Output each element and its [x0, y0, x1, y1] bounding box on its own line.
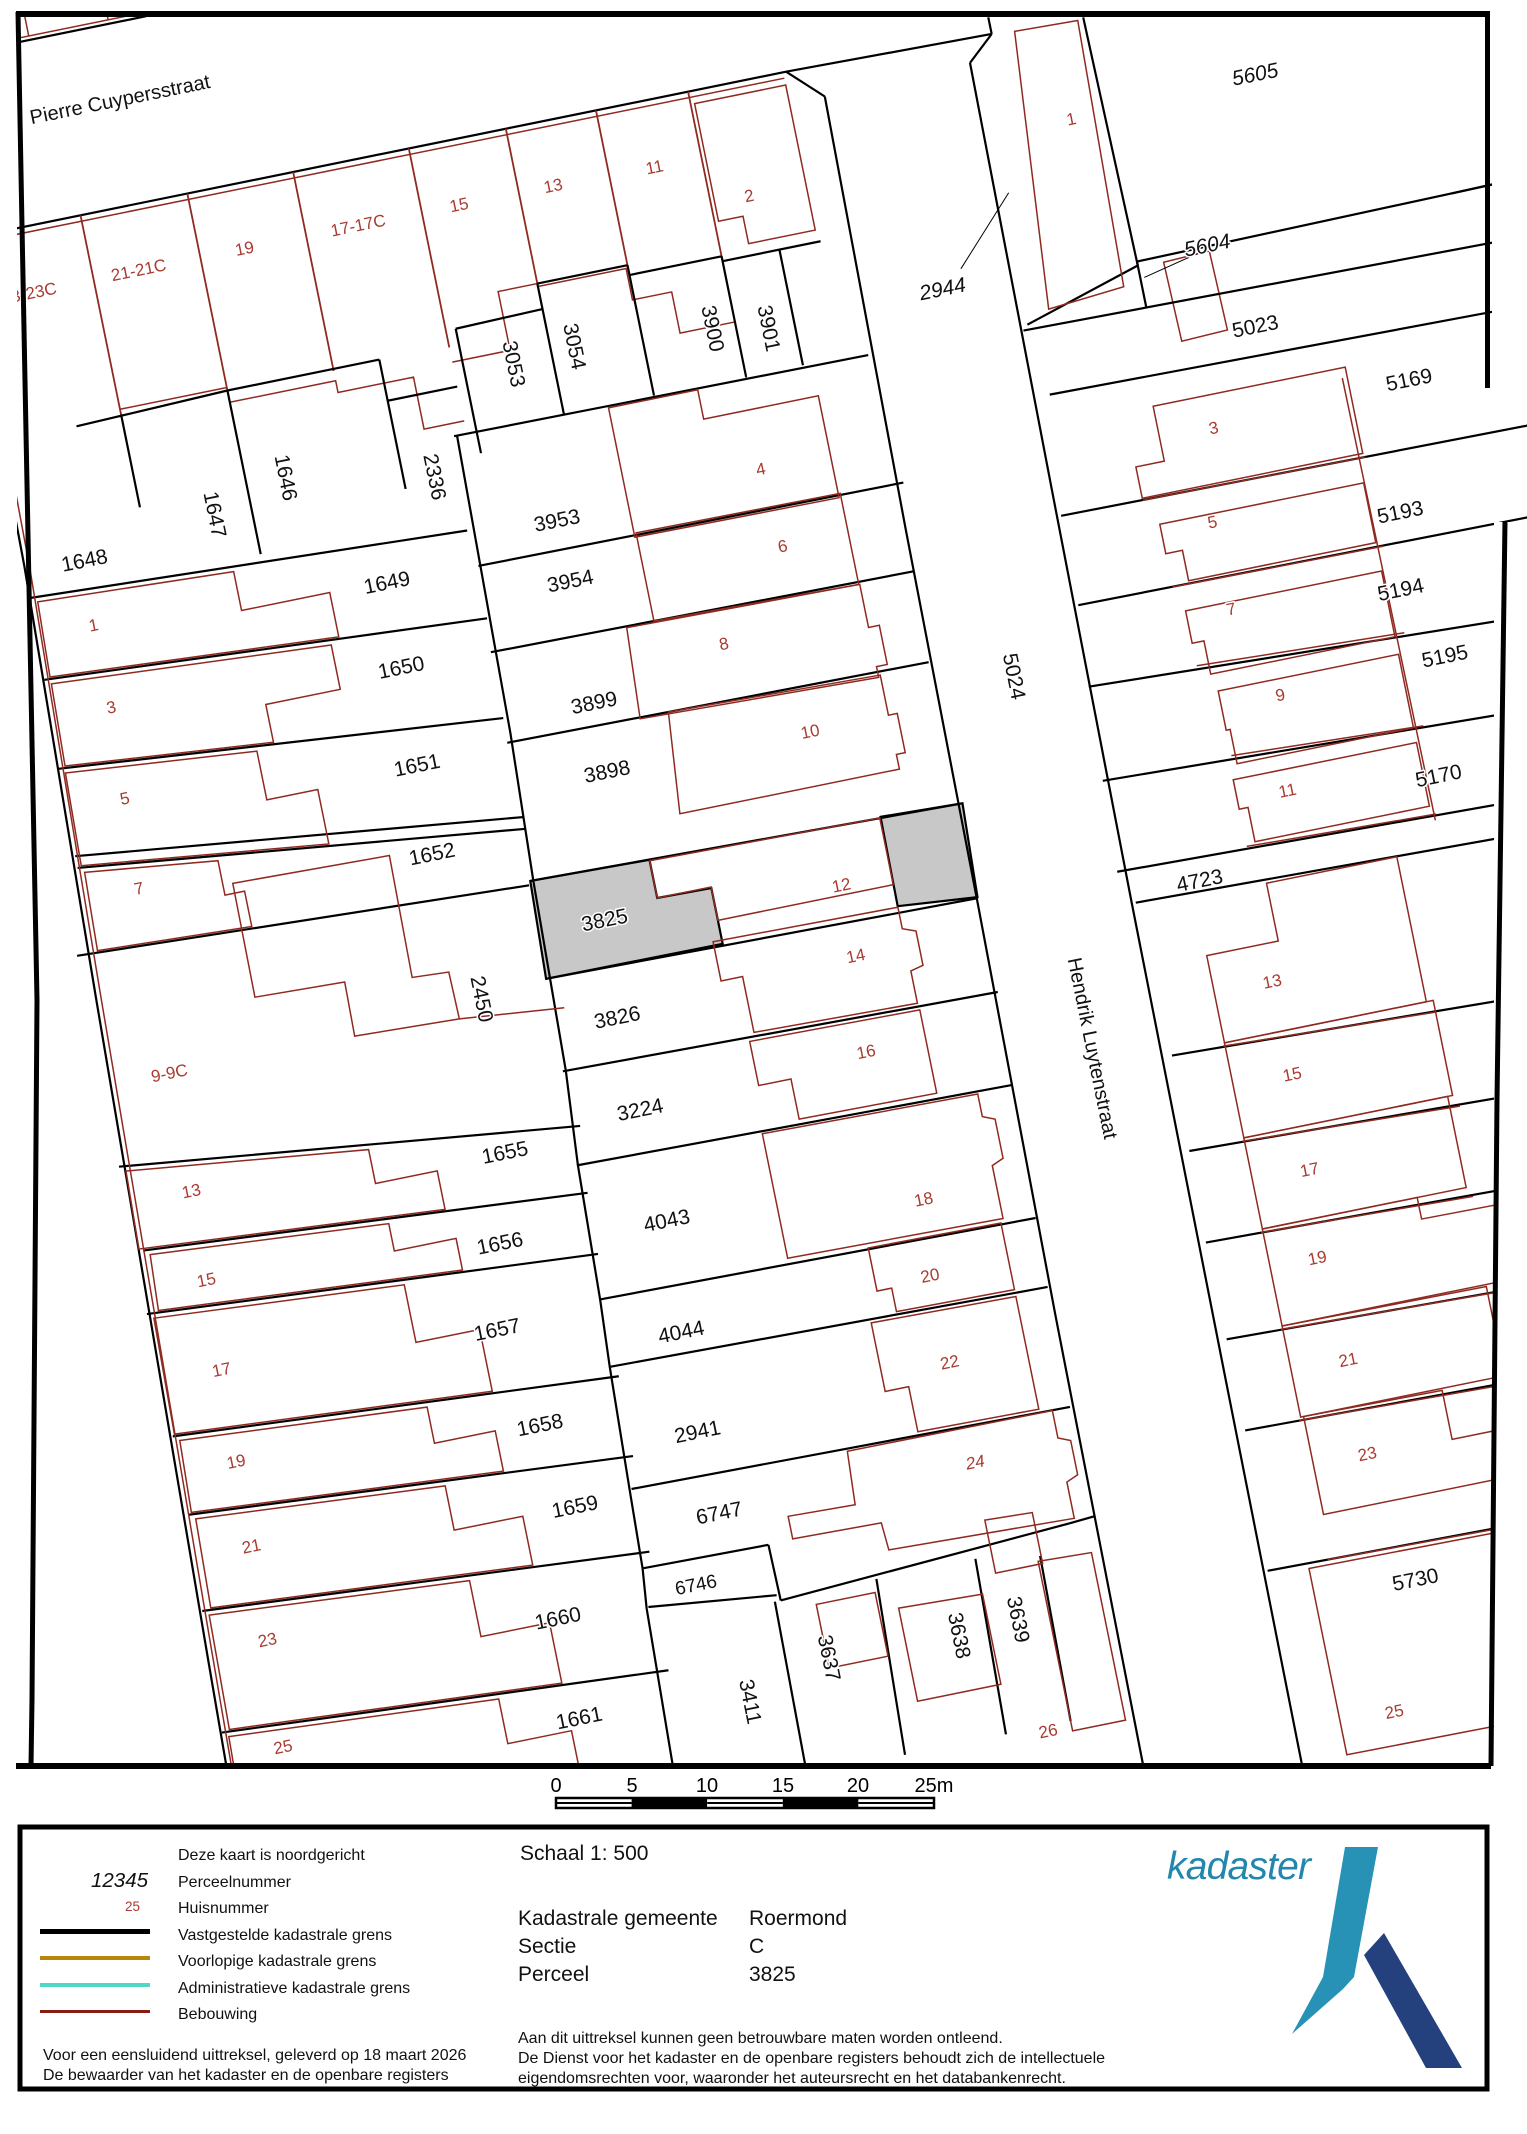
svg-text:15: 15 [448, 194, 470, 216]
svg-text:23: 23 [1356, 1443, 1378, 1465]
svg-text:Schaal 1: 500: Schaal 1: 500 [520, 1842, 648, 1865]
svg-text:18: 18 [913, 1188, 935, 1210]
svg-text:25: 25 [1383, 1701, 1405, 1723]
svg-text:13: 13 [180, 1180, 202, 1202]
svg-text:15: 15 [772, 1775, 794, 1797]
svg-text:19: 19 [1306, 1247, 1328, 1269]
svg-text:21: 21 [1337, 1349, 1359, 1371]
svg-text:10: 10 [799, 720, 821, 742]
svg-text:Aan dit uittreksel kunnen geen: Aan dit uittreksel kunnen geen betrouwba… [518, 2030, 1003, 2047]
svg-text:12345: 12345 [91, 1869, 149, 1892]
svg-text:20: 20 [847, 1775, 869, 1797]
svg-text:17: 17 [210, 1359, 232, 1381]
svg-text:Vastgestelde kadastrale grens: Vastgestelde kadastrale grens [178, 1927, 392, 1944]
svg-text:Voorlopige kadastrale grens: Voorlopige kadastrale grens [178, 1953, 376, 1970]
svg-text:0: 0 [550, 1775, 561, 1797]
svg-text:12: 12 [830, 874, 852, 896]
svg-text:25: 25 [272, 1736, 294, 1758]
svg-text:15: 15 [1281, 1063, 1303, 1085]
svg-text:17: 17 [1298, 1159, 1320, 1181]
svg-text:Perceel: Perceel [518, 1963, 589, 1986]
svg-text:10: 10 [696, 1775, 718, 1797]
svg-text:15: 15 [195, 1269, 217, 1291]
svg-text:Bebouwing: Bebouwing [178, 2006, 257, 2023]
svg-text:5: 5 [626, 1775, 637, 1797]
svg-text:Perceelnummer: Perceelnummer [178, 1874, 292, 1891]
svg-text:13: 13 [542, 175, 564, 197]
svg-text:Administratieve kadastrale gre: Administratieve kadastrale grens [178, 1980, 410, 1997]
svg-text:25m: 25m [915, 1775, 954, 1797]
svg-text:Voor een eensluidend uittrekse: Voor een eensluidend uittreksel, gelever… [43, 2047, 467, 2064]
svg-text:23: 23 [256, 1629, 278, 1651]
svg-text:11: 11 [644, 156, 665, 178]
svg-text:11: 11 [1277, 780, 1298, 802]
svg-text:eigendomsrechten voor, waarond: eigendomsrechten voor, waaronder het aut… [518, 2070, 1066, 2087]
svg-text:16: 16 [855, 1041, 877, 1063]
svg-text:Roermond: Roermond [749, 1907, 847, 1930]
svg-text:20: 20 [919, 1265, 941, 1287]
svg-text:25: 25 [125, 1899, 140, 1914]
svg-text:26: 26 [1037, 1720, 1059, 1742]
svg-text:14: 14 [845, 945, 867, 967]
svg-text:3825: 3825 [749, 1963, 796, 1986]
svg-text:22: 22 [939, 1351, 961, 1373]
svg-text:kadaster: kadaster [1167, 1845, 1313, 1888]
svg-text:Kadastrale gemeente: Kadastrale gemeente [518, 1907, 718, 1930]
svg-text:De bewaarder van het kadaster: De bewaarder van het kadaster en de open… [43, 2067, 449, 2084]
svg-text:24: 24 [963, 1451, 986, 1474]
svg-text:C: C [749, 1935, 764, 1958]
svg-text:19: 19 [225, 1451, 247, 1473]
svg-text:21: 21 [240, 1535, 262, 1557]
svg-text:De Dienst voor het kadaster en: De Dienst voor het kadaster en de openba… [518, 2050, 1105, 2067]
svg-text:Deze kaart is noordgericht: Deze kaart is noordgericht [178, 1847, 365, 1864]
svg-text:13: 13 [1261, 970, 1283, 992]
svg-text:Huisnummer: Huisnummer [178, 1900, 269, 1917]
svg-text:19: 19 [233, 238, 255, 260]
svg-text:Sectie: Sectie [518, 1935, 576, 1958]
